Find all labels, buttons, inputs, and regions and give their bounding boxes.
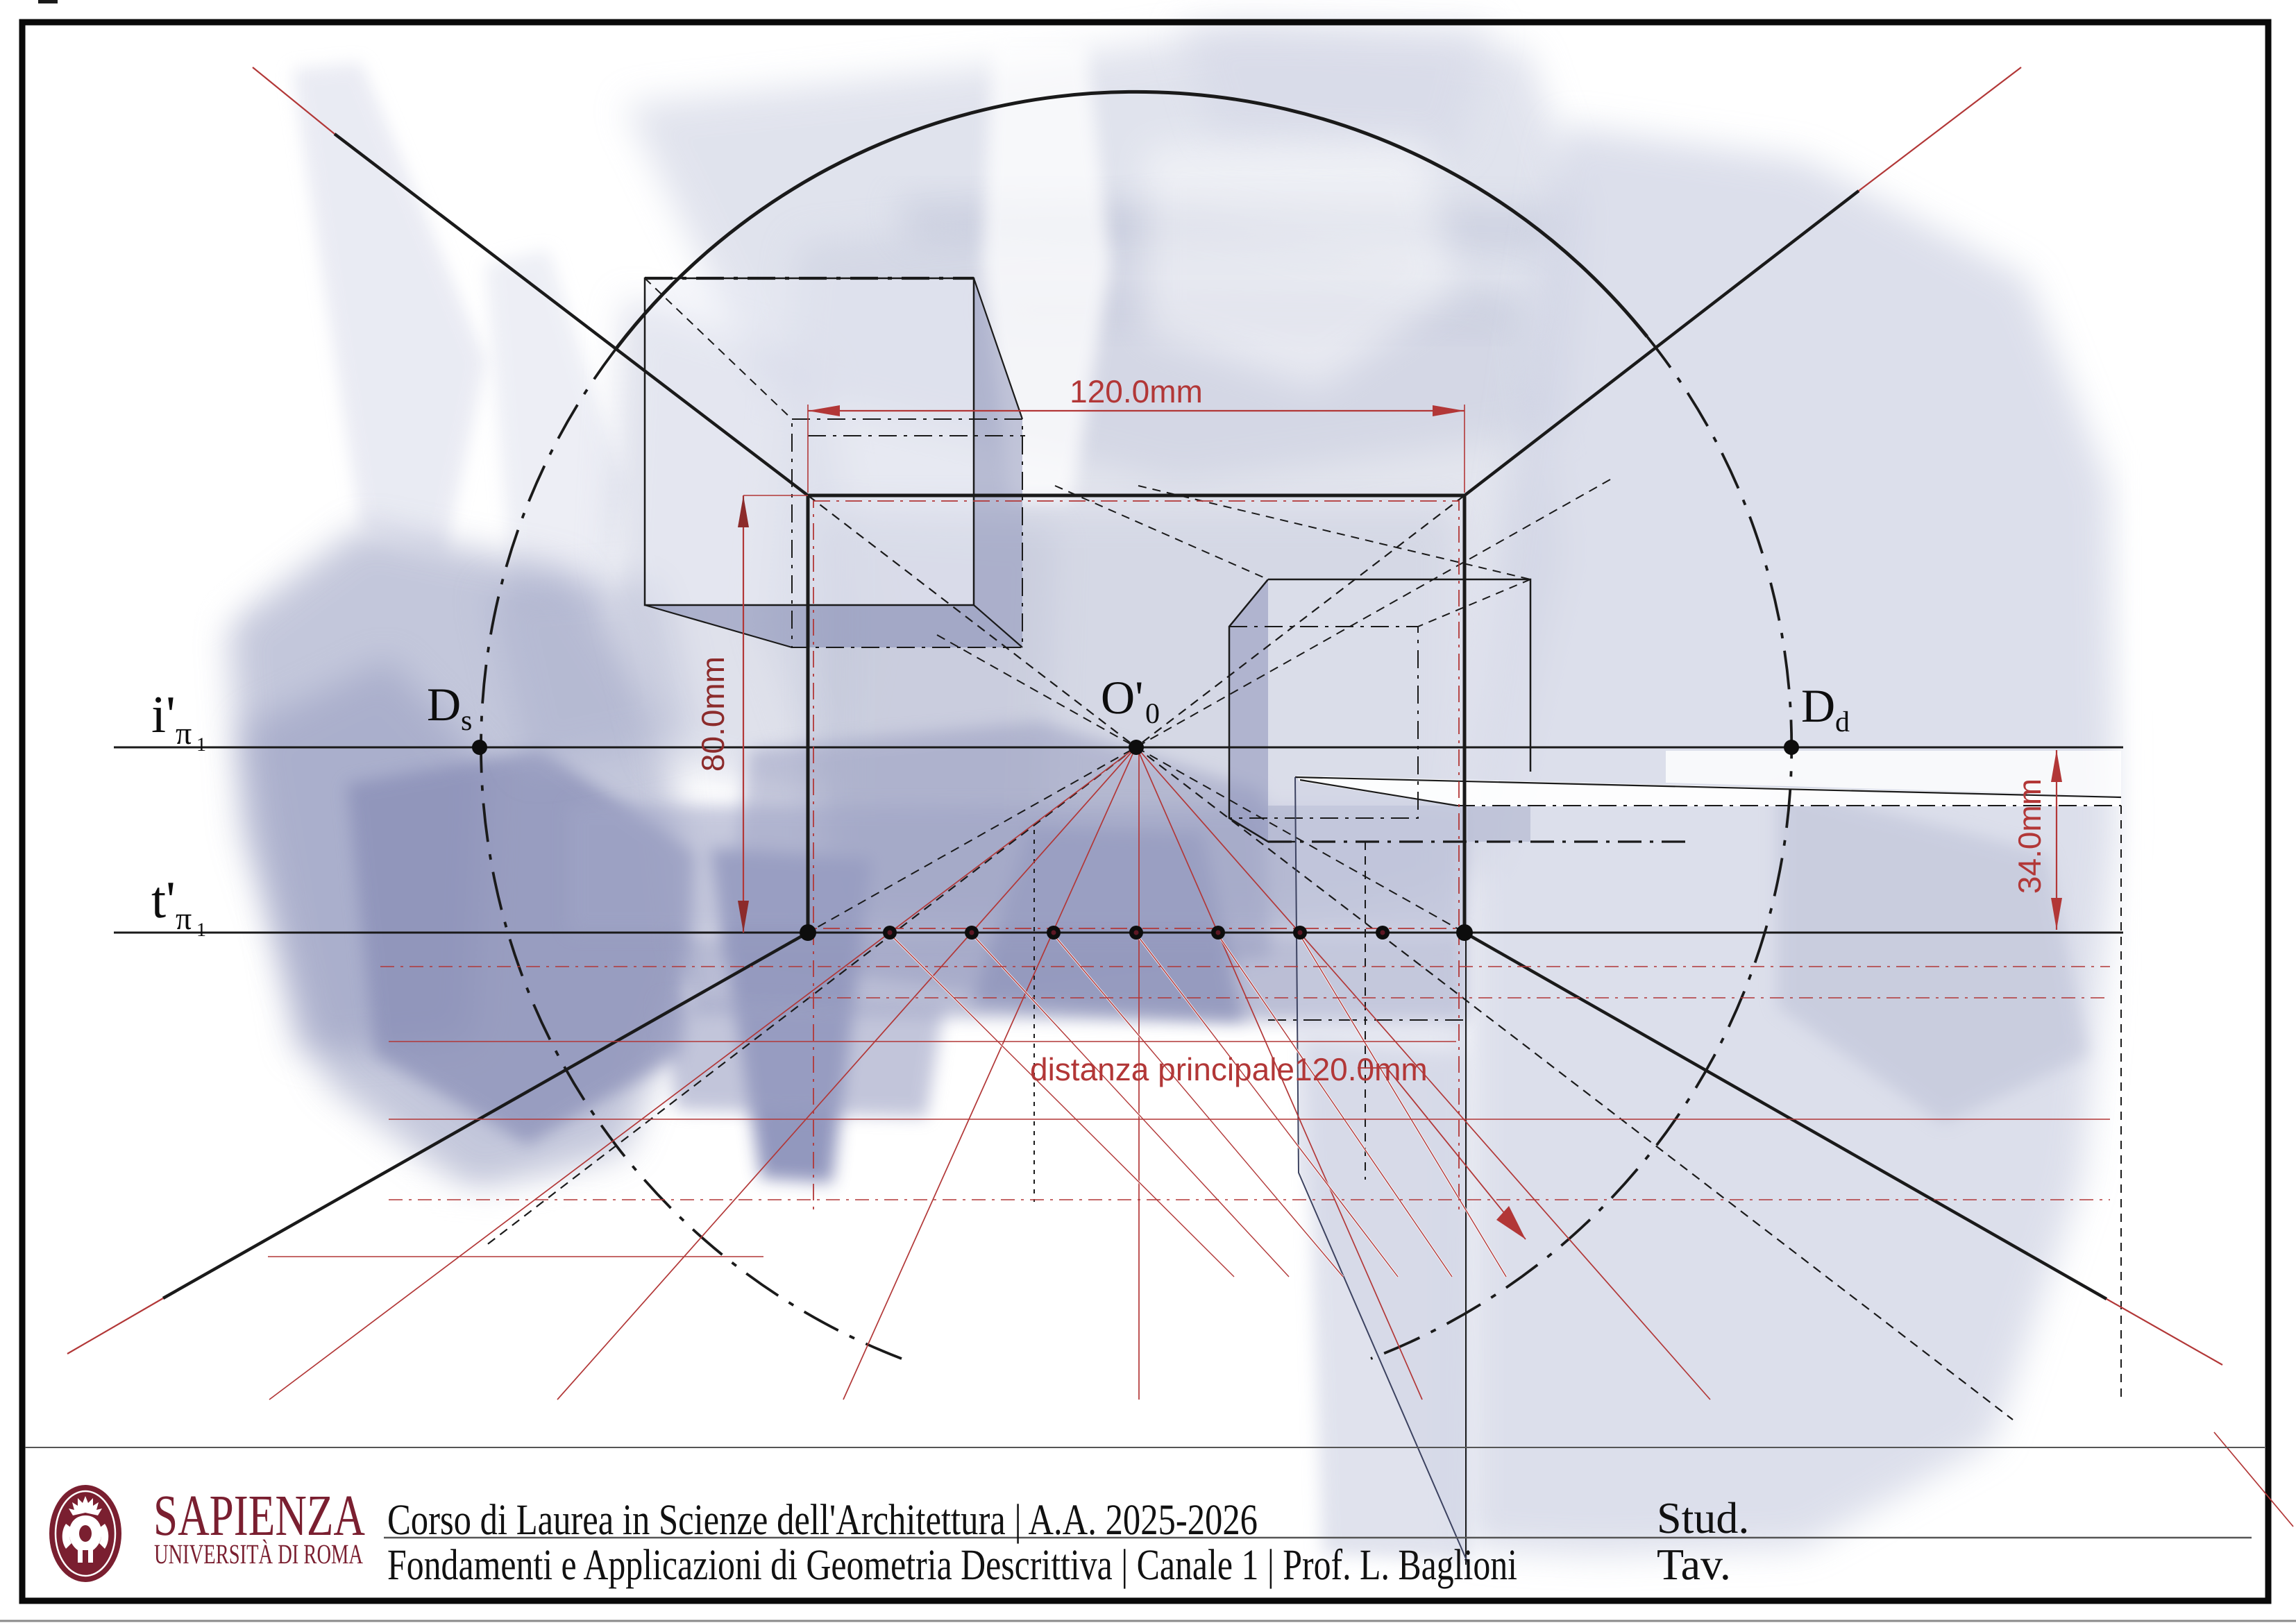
svg-text:Tav.: Tav.: [1657, 1540, 1731, 1589]
svg-text:d: d: [1835, 706, 1850, 738]
svg-text:34.0mm: 34.0mm: [2011, 779, 2048, 894]
svg-text:Fondamenti e Applicazioni di G: Fondamenti e Applicazioni di Geometria D…: [387, 1540, 1517, 1589]
svg-text:Stud.: Stud.: [1657, 1493, 1749, 1543]
svg-text:D: D: [1801, 679, 1835, 732]
svg-text:D: D: [427, 678, 461, 731]
svg-text:1: 1: [196, 734, 206, 756]
svg-text:π: π: [176, 715, 192, 751]
svg-text:π: π: [176, 901, 192, 936]
svg-text:Corso di Laurea in Scienze del: Corso di Laurea in Scienze dell'Architet…: [387, 1495, 1258, 1544]
svg-text:120.0mm: 120.0mm: [1070, 373, 1203, 409]
svg-text:0: 0: [1145, 698, 1160, 730]
svg-text:1: 1: [196, 919, 206, 941]
svg-text:i': i': [151, 686, 176, 744]
svg-text:O': O': [1101, 671, 1143, 724]
svg-text:s: s: [461, 705, 472, 737]
svg-text:t': t': [151, 871, 176, 929]
svg-text:80.0mm: 80.0mm: [695, 656, 731, 772]
svg-text:UNIVERSITÀ DI ROMA: UNIVERSITÀ DI ROMA: [154, 1538, 363, 1570]
svg-text:distanza principale120.0mm: distanza principale120.0mm: [1030, 1051, 1428, 1087]
